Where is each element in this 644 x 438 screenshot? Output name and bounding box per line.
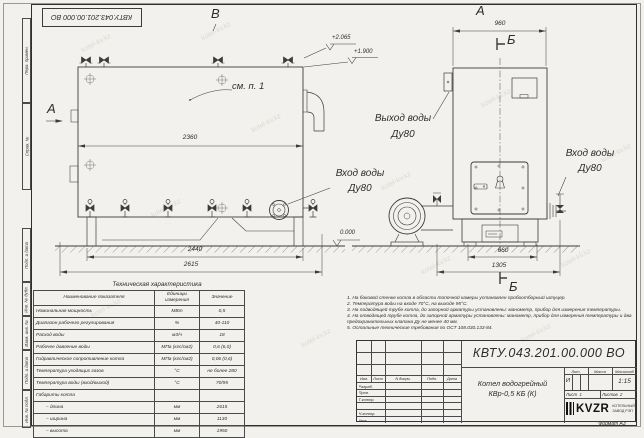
row-value: 0,5 bbox=[200, 306, 245, 318]
row-units: МПа (кгс/см2) bbox=[155, 354, 200, 366]
col-list: Лист bbox=[371, 377, 385, 381]
top-designation-stamp: КВТУ.043.201.00.000 ВО bbox=[42, 8, 142, 27]
row-tkontr: Т.контр. bbox=[359, 397, 375, 402]
top-designation-text: КВТУ.043.201.00.000 ВО bbox=[51, 13, 132, 22]
section-label-b-bottom: Б bbox=[509, 280, 517, 293]
margin-field-inv-dubl: Инв. № дубл. bbox=[22, 282, 31, 316]
row-units bbox=[155, 390, 200, 402]
view-label-a-front: А bbox=[476, 4, 485, 17]
scale-header: Масштаб bbox=[612, 369, 637, 374]
callout-see-note-1: см. п. 1 bbox=[232, 82, 264, 92]
logo-text: KVZR bbox=[576, 403, 609, 415]
row-name: Гидравлическое сопротивление котла bbox=[34, 354, 155, 366]
row-units: мм bbox=[155, 414, 200, 426]
row-utv: Утв. bbox=[359, 418, 368, 423]
side-inlet-dn: Ду80 bbox=[320, 184, 400, 194]
tech-col-units: Единицы измерения bbox=[155, 291, 200, 306]
sheets-label: Листов bbox=[602, 392, 618, 397]
table-row: Диапазон рабочего регулирования%40-110 bbox=[34, 318, 245, 330]
row-value: 18 bbox=[200, 330, 245, 342]
note-5: 5. Остальные технические требования по О… bbox=[347, 326, 636, 332]
side-inlet-label: Вход воды bbox=[320, 169, 400, 179]
logo-subtitle-1: КОТЕЛЬНЫЙ bbox=[612, 404, 635, 408]
row-nkontr: Н.контр. bbox=[359, 411, 376, 416]
section-label-b-top: Б bbox=[507, 33, 515, 46]
elevation-1900: +1.900 bbox=[354, 49, 373, 55]
sheets-no: 2 bbox=[620, 392, 622, 397]
table-row: – длинамм2615 bbox=[34, 402, 245, 414]
margin-field-label: Взам. инв. № bbox=[24, 320, 29, 347]
margin-field-podp-data-2: Подп. и дата bbox=[22, 350, 31, 390]
sheet-no: 1 bbox=[579, 392, 581, 397]
row-name: Габариты котла bbox=[34, 390, 155, 402]
elevation-0000: 0.000 bbox=[340, 230, 355, 236]
table-row: Температура воды (вход/выход)°С70/95 bbox=[34, 378, 245, 390]
margin-field-label: Перв. примен. bbox=[24, 46, 29, 75]
view-arrow-label-a: А bbox=[47, 102, 56, 115]
mass-header: Масса bbox=[588, 369, 612, 374]
row-name: Номинальная мощность bbox=[34, 306, 155, 318]
notes-block: 1. На боковой стенке котла в области топ… bbox=[347, 296, 636, 332]
lit-value: И bbox=[564, 378, 572, 384]
lit-header: Лит. bbox=[564, 369, 588, 374]
tech-table: Наименование показателя Единицы измерени… bbox=[33, 290, 245, 438]
row-value: 70/95 bbox=[200, 378, 245, 390]
row-value: не более 280 bbox=[200, 366, 245, 378]
dim-2440: 2440 bbox=[155, 247, 235, 254]
row-prov: Пров. bbox=[359, 390, 370, 395]
margin-field-podp-data-1: Подп. и дата bbox=[22, 228, 31, 282]
dim-660: 660 bbox=[463, 248, 543, 255]
tech-col-value: Значение bbox=[200, 291, 245, 306]
front-inlet-label: Вход воды bbox=[548, 149, 632, 159]
title-block: Изм. Лист N докум. Подп. Дата Разраб. Пр… bbox=[356, 340, 636, 422]
sheets-cell: Листов 2 bbox=[602, 392, 637, 397]
table-row: Расход водым3/ч18 bbox=[34, 330, 245, 342]
row-units: °С bbox=[155, 366, 200, 378]
row-name: Расход воды bbox=[34, 330, 155, 342]
row-value bbox=[200, 390, 245, 402]
row-razrab: Разраб. bbox=[359, 384, 373, 389]
product-name-line1: Котел водогрейный bbox=[461, 379, 564, 388]
table-row: Габариты котла bbox=[34, 390, 245, 402]
margin-field-sprav-n: Справ. № bbox=[22, 103, 31, 190]
row-value: 1950 bbox=[200, 426, 245, 438]
format-label: Формат А3 bbox=[588, 422, 636, 427]
sheet-cell: Лист 1 bbox=[566, 392, 600, 397]
margin-field-label: Подп. и дата bbox=[24, 242, 29, 269]
logo-subtitle-2: ЗАВОД РЭП bbox=[612, 409, 635, 413]
row-name: Рабочее давление воды bbox=[34, 342, 155, 354]
col-doc: N докум. bbox=[385, 377, 421, 381]
margin-field-label: Инв. № дубл. bbox=[24, 286, 29, 312]
row-name: Диапазон рабочего регулирования bbox=[34, 318, 155, 330]
outlet-label: Выход воды bbox=[361, 114, 445, 124]
col-date: Дата bbox=[443, 377, 461, 381]
row-value: 1130 bbox=[200, 414, 245, 426]
margin-field-vzam-inv: Взам. инв. № bbox=[22, 316, 31, 350]
margin-field-perv-primen: Перв. примен. bbox=[22, 18, 31, 103]
elevation-2065: +2.065 bbox=[332, 35, 351, 41]
row-name: Температура уходящих газов bbox=[34, 366, 155, 378]
dim-1305: 1305 bbox=[459, 263, 539, 270]
table-row: Рабочее давление водыМПа (кгс/см2)0,6 (6… bbox=[34, 342, 245, 354]
row-units: °С bbox=[155, 378, 200, 390]
row-value: 40-110 bbox=[200, 318, 245, 330]
row-name: – высота bbox=[34, 426, 155, 438]
row-units: м3/ч bbox=[155, 330, 200, 342]
dim-2360: 2360 bbox=[150, 135, 230, 142]
outlet-dn: Ду80 bbox=[361, 130, 445, 140]
margin-field-label: Справ. № bbox=[24, 137, 29, 157]
table-row: – ширинамм1130 bbox=[34, 414, 245, 426]
company-logo: KVZR КОТЕЛЬНЫЙ ЗАВОД РЭП bbox=[566, 402, 636, 415]
dim-2615: 2615 bbox=[151, 262, 231, 269]
table-row: Гидравлическое сопротивление котлаМПа (к… bbox=[34, 354, 245, 366]
note-4: 4. На отводящей трубе котла, до запорной… bbox=[347, 314, 636, 326]
logo-mark-icon bbox=[566, 402, 574, 415]
view-label-b: В bbox=[211, 7, 220, 20]
dim-960: 960 bbox=[460, 21, 540, 28]
margin-field-label: Подп. и дата bbox=[24, 357, 29, 384]
product-name-line2: КВр-0,5 КБ (К) bbox=[461, 389, 564, 398]
row-units: мм bbox=[155, 402, 200, 414]
scale-value: 1:15 bbox=[612, 378, 637, 385]
margin-field-label: Инв. № подл. bbox=[24, 396, 29, 423]
row-name: – ширина bbox=[34, 414, 155, 426]
front-inlet-dn: Ду80 bbox=[548, 164, 632, 174]
tech-col-name: Наименование показателя bbox=[34, 291, 155, 306]
row-units: МВт bbox=[155, 306, 200, 318]
table-row: Температура уходящих газов°Сне более 280 bbox=[34, 366, 245, 378]
row-value: 0,06 (0,6) bbox=[200, 354, 245, 366]
row-value: 2615 bbox=[200, 402, 245, 414]
col-izm: Изм. bbox=[357, 377, 371, 381]
row-units: МПа (кгс/см2) bbox=[155, 342, 200, 354]
document-designation: КВТУ.043.201.00.000 ВО bbox=[461, 346, 637, 360]
tech-table-title: Техническая характеристика bbox=[68, 282, 246, 288]
col-sign: Подп. bbox=[421, 377, 443, 381]
table-row: Номинальная мощностьМВт0,5 bbox=[34, 306, 245, 318]
row-units: мм bbox=[155, 426, 200, 438]
row-name: Температура воды (вход/выход) bbox=[34, 378, 155, 390]
table-row: – высотамм1950 bbox=[34, 426, 245, 438]
row-name: – длина bbox=[34, 402, 155, 414]
margin-field-inv-podl: Инв. № подл. bbox=[22, 390, 31, 428]
row-units: % bbox=[155, 318, 200, 330]
sheet-label: Лист bbox=[566, 392, 577, 397]
row-value: 0,6 (6,0) bbox=[200, 342, 245, 354]
